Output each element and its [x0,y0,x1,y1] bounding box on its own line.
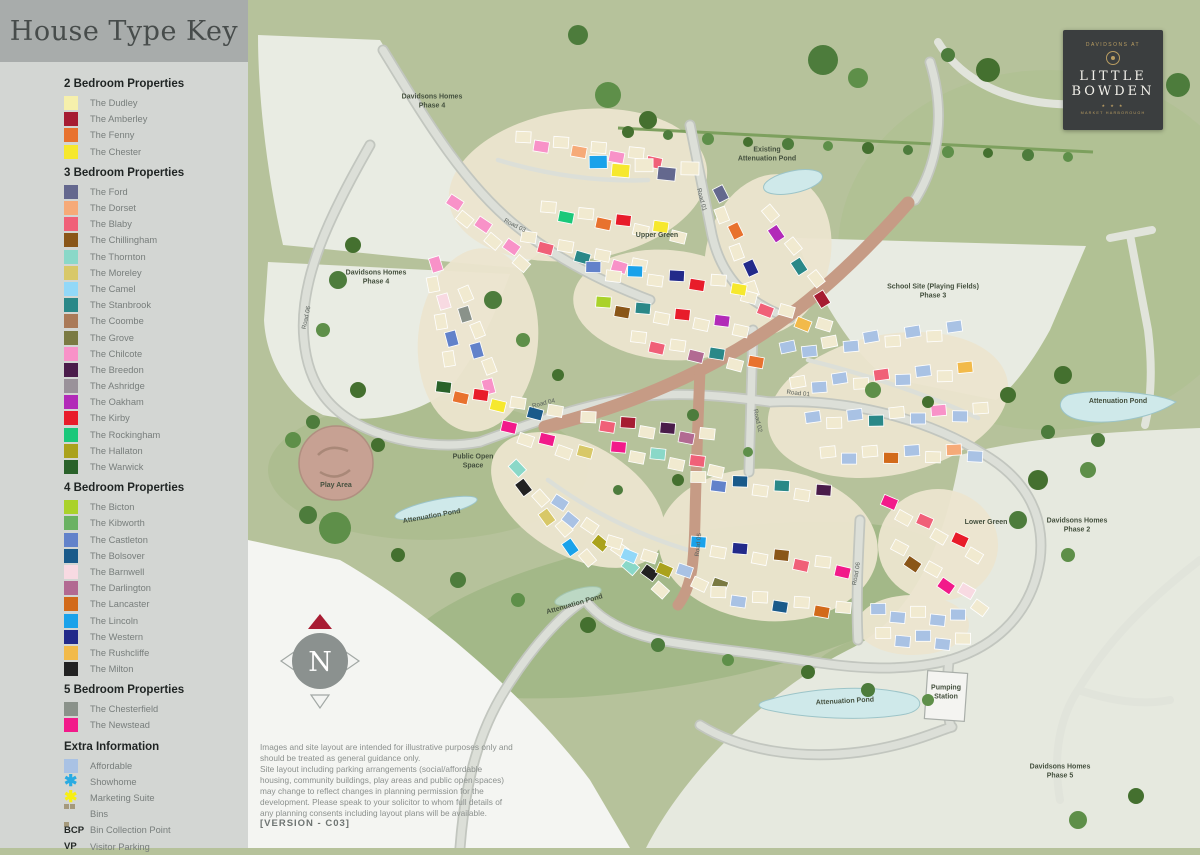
page-title: House Type Key [10,16,238,47]
panel-header: House Type Key [0,0,248,62]
house-plot [547,404,564,417]
legend-item: The Bicton [64,499,242,515]
house-plot [904,325,921,338]
house-plot [510,396,527,409]
site-plan-map: Davidsons HomesPhase 4ExistingAttenuatio… [248,0,1200,848]
legend-item: The Rushcliffe [64,645,242,661]
house-plot [442,350,455,367]
house-type-label: The Chester [90,147,141,157]
house-type-label: The Lancaster [90,599,149,609]
tree-icon [516,333,530,347]
house-type-label: The Castleton [90,535,148,545]
affordable-swatch [64,759,78,773]
legend-item: The Coombe [64,313,242,329]
house-type-label: The Camel [90,284,135,294]
house-type-swatch [64,233,78,247]
legend-icon-cell [64,662,79,677]
house-type-swatch [64,282,78,296]
legend-icon-cell [64,427,79,442]
legend-item: The Chester [64,144,242,160]
house-plot [571,145,588,158]
legend-icon-cell [64,613,79,628]
house-plot [752,484,768,497]
house-plot [434,313,447,330]
tree-icon [1091,433,1105,447]
house-plot [732,542,748,554]
logo-name-line2: BOWDEN [1071,84,1154,99]
legend-icon-cell: BCP [64,823,79,838]
tree-icon [1028,470,1048,490]
house-plot [557,240,574,253]
house-type-label: The Thornton [90,252,146,262]
house-type-label: The Ford [90,187,128,197]
legend-item: The Kibworth [64,515,242,531]
legend-icon-cell [64,548,79,563]
house-plot [955,633,970,644]
house-plot [794,488,811,501]
legend-icon-cell [64,411,79,426]
house-plot [627,266,642,278]
house-type-label: The Chesterfield [90,704,158,714]
house-plot [957,361,973,374]
house-type-swatch [64,347,78,361]
house-type-swatch [64,112,78,126]
version-label: [VERSION - C03] [260,818,350,829]
house-plot [843,340,859,352]
house-plot [653,312,670,326]
house-plot [605,270,621,283]
house-plot [801,345,817,358]
tree-icon [941,48,955,62]
house-plot [436,381,452,394]
house-plot [533,140,550,153]
tree-icon [861,683,875,697]
house-plot [732,476,747,488]
legend-icon-cell [64,629,79,644]
legend-icon-cell [64,346,79,361]
house-plot [952,411,967,422]
house-plot [820,446,836,459]
house-type-label: The Blaby [90,219,132,229]
house-plot [670,339,686,352]
legend-item: The Ford [64,184,242,200]
compass-letter: N [308,647,332,678]
house-plot [883,452,898,463]
house-plot [611,163,630,178]
tree-icon [976,58,1000,82]
legend-item: The Stanbrook [64,297,242,313]
tree-icon [345,237,361,253]
house-type-label: The Dudley [90,98,138,108]
tree-icon [942,146,954,158]
tree-icon [823,141,833,151]
legend-item: The Fenny [64,127,242,143]
house-plot [473,388,489,401]
house-plot [608,150,625,164]
house-type-swatch [64,314,78,328]
legend-icon-cell [64,645,79,660]
tree-icon [1009,511,1027,529]
house-type-swatch [64,646,78,660]
logo-name-line1: LITTLE [1079,69,1146,84]
house-type-swatch [64,702,78,716]
house-type-label: The Chilcote [90,349,142,359]
compass-south-arrow-icon [311,695,329,708]
legend-item: The Chillingham [64,232,242,248]
house-plot [631,331,647,344]
legend-item: The Barnwell [64,564,242,580]
tree-icon [808,45,838,75]
house-plot [895,374,910,386]
house-plot [925,451,940,463]
legend-icon-cell [64,265,79,280]
tree-icon [801,665,815,679]
disclaimer-paragraph-1: Images and site layout are intended for … [260,742,515,764]
map-label: Lower Green [965,519,1008,526]
tree-icon [743,137,753,147]
logo-location: MARKET HARBOROUGH [1081,111,1146,115]
house-plot [591,141,607,153]
house-plot [589,155,607,168]
house-type-label: The Warwick [90,462,143,472]
house-plot [950,609,965,620]
house-plot [930,614,946,627]
legend-item: The Hallaton [64,443,242,459]
house-plot [710,480,726,493]
disclaimer-paragraph-2: Site layout including parking arrangemen… [260,764,515,819]
little-bowden-logo: DAVIDSONS AT LITTLE BOWDEN ★ ★ ★ MARKET … [1063,30,1163,130]
tree-icon [743,447,753,457]
house-plot [915,365,931,378]
tree-icon [329,271,347,289]
house-type-swatch [64,630,78,644]
tree-icon [622,126,634,138]
house-type-swatch [64,533,78,547]
house-plot [876,627,891,638]
house-plot [669,270,685,282]
legend-icon-cell [64,112,79,127]
house-type-label: The Dorset [90,203,136,213]
legend-icon-cell [64,443,79,458]
house-plot [863,330,880,343]
tree-icon [316,323,330,337]
house-plot [553,136,569,148]
house-plot [789,375,806,388]
tree-icon [1080,462,1096,478]
tree-icon [983,148,993,158]
house-plot [842,453,857,464]
house-type-swatch [64,565,78,579]
house-plot [937,371,952,382]
tree-icon [862,142,874,154]
north-compass: N [272,608,368,714]
house-plot [751,552,768,566]
legend-icon-cell [64,281,79,296]
legend-icon-cell [64,758,79,773]
house-type-label: The Darlington [90,583,151,593]
house-type-label: The Chillingham [90,235,157,245]
showhome-icon: ✱ [64,775,77,789]
legend-item: The Ashridge [64,378,242,394]
legend-icon-cell [64,314,79,329]
legend-item: The Grove [64,329,242,345]
house-plot [660,422,676,434]
legend-item: ✱Marketing Suite [64,790,242,806]
house-type-label: The Bolsover [90,551,145,561]
legend-item: BCPBin Collection Point [64,822,242,838]
tree-icon [1061,548,1075,562]
house-plot [709,347,726,360]
house-type-label: The Western [90,632,143,642]
legend-item: The Lincoln [64,612,242,628]
house-plot [657,166,676,181]
house-plot [611,441,627,453]
legend-item: The Dudley [64,95,242,111]
legend-section-heading: 5 Bedroom Properties [64,683,242,697]
legend-item: The Dorset [64,200,242,216]
house-plot [772,600,789,613]
tree-icon [595,82,621,108]
house-type-label: The Kibworth [90,518,145,528]
tree-icon [299,506,317,524]
house-type-swatch [64,662,78,676]
house-plot [541,201,557,213]
house-plot [650,448,666,461]
house-plot [816,484,832,496]
legend-icon-cell [64,330,79,345]
house-plot [628,147,644,160]
house-type-swatch [64,128,78,142]
house-plot [689,278,706,291]
tree-icon [687,409,699,421]
legend-abbreviation: BCP [64,825,84,836]
tree-icon [552,369,564,381]
legend-item: The Kirby [64,410,242,426]
house-type-label: The Grove [90,333,134,343]
house-plot [773,549,789,562]
legend-icon-cell [64,362,79,377]
house-plot [586,261,601,272]
tree-icon [450,572,466,588]
legend-item: The Milton [64,661,242,677]
legend-section-heading: Extra Information [64,740,242,754]
house-type-swatch [64,379,78,393]
disclaimer-text: Images and site layout are intended for … [260,742,515,819]
legend-abbreviation: VP [64,841,77,852]
house-plot [614,305,631,318]
house-plot [869,415,884,426]
legend-item: Affordable [64,758,242,774]
house-plot [710,546,727,559]
logo-prefix: DAVIDSONS AT [1086,42,1140,48]
house-type-swatch [64,298,78,312]
house-plot [826,417,841,429]
house-plot [871,603,886,614]
site-plan-svg: Davidsons HomesPhase 4ExistingAttenuatio… [248,0,1200,848]
house-plot [689,455,705,468]
legend-item: VPVisitor Parking [64,839,242,855]
house-plot [916,630,931,641]
house-type-label: Affordable [90,761,132,771]
house-plot [615,214,631,227]
house-type-label: The Oakham [90,397,144,407]
legend-icon-cell [64,298,79,313]
house-type-label: Bin Collection Point [90,825,171,835]
legend-item: The Castleton [64,532,242,548]
legend-icon-cell [64,718,79,733]
house-plot [714,314,730,327]
house-plot [558,210,575,224]
map-label: Upper Green [636,232,678,239]
house-plot [931,404,947,416]
house-type-label: Visitor Parking [90,842,150,852]
house-type-swatch [64,96,78,110]
legend-icon-cell [64,460,79,475]
house-type-swatch [64,395,78,409]
house-type-label: The Breedon [90,365,144,375]
tree-icon [484,291,502,309]
house-plot [895,635,911,647]
house-type-swatch [64,145,78,159]
tree-icon [580,617,596,633]
house-plot [674,308,690,321]
house-plot [889,406,905,419]
legend-item: ✱Showhome [64,774,242,790]
house-type-swatch [64,549,78,563]
tree-icon [1000,387,1016,403]
house-type-label: The Milton [90,664,133,674]
legend-item: Bins [64,806,242,822]
logo-stars: ★ ★ ★ [1102,103,1125,108]
house-plot [946,320,962,333]
house-type-swatch [64,597,78,611]
house-plot [885,335,901,347]
house-plot [635,159,653,172]
legend-icon-cell [64,702,79,717]
legend-item: The Thornton [64,249,242,265]
house-type-swatch [64,411,78,425]
house-type-label: The Hallaton [90,446,143,456]
house-plot [911,413,926,424]
tree-icon [672,474,684,486]
house-plot [821,335,838,349]
house-plot [678,431,695,445]
house-plot [794,596,810,608]
tree-icon [371,438,385,452]
house-type-label: The Amberley [90,114,147,124]
house-type-swatch [64,500,78,514]
legend-item: The Chilcote [64,346,242,362]
house-plot [973,402,989,414]
house-plot [691,471,706,482]
legend-item: The Western [64,629,242,645]
legend-icon-cell [64,379,79,394]
legend-icon-cell [64,516,79,531]
legend-icon-cell [64,597,79,612]
house-type-key-panel: House Type Key 2 Bedroom PropertiesThe D… [0,0,248,848]
legend-icon-cell [64,581,79,596]
tree-icon [1166,73,1190,97]
legend-icon-cell [64,144,79,159]
tree-icon [319,512,351,544]
legend-item: The Warwick [64,459,242,475]
house-plot [629,451,646,465]
house-plot [635,302,651,314]
house-type-label: The Rockingham [90,430,160,440]
house-plot [748,355,765,368]
tree-icon [639,111,657,129]
house-type-swatch [64,516,78,530]
tree-icon [663,130,673,140]
tree-icon [1041,425,1055,439]
legend-icon-cell [64,500,79,515]
house-type-label: The Rushcliffe [90,648,149,658]
house-type-swatch [64,460,78,474]
tree-icon [848,68,868,88]
compass-north-arrow-icon [308,614,332,629]
house-type-swatch [64,250,78,264]
tree-icon [922,396,934,408]
house-plot [862,445,878,457]
legend-section-heading: 2 Bedroom Properties [64,77,242,91]
house-type-swatch [64,718,78,732]
tree-icon [1128,788,1144,804]
house-plot [904,445,920,457]
legend-icon-cell [64,233,79,248]
house-type-swatch [64,363,78,377]
house-plot [967,451,983,463]
house-type-label: The Kirby [90,413,130,423]
house-plot [730,595,746,608]
house-plot [813,605,830,618]
tree-icon [702,133,714,145]
house-plot [620,417,636,429]
house-type-swatch [64,201,78,215]
tree-icon [903,145,913,155]
legend-icon-cell [64,184,79,199]
house-plot [426,276,440,293]
house-plot [811,381,827,393]
house-type-label: The Moreley [90,268,142,278]
house-type-label: The Barnwell [90,567,144,577]
house-type-swatch [64,428,78,442]
legend-item: The Amberley [64,111,242,127]
house-plot [831,372,848,385]
house-plot [847,408,863,421]
legend-icon-cell [64,807,79,822]
house-type-swatch [64,581,78,595]
house-plot [835,601,851,613]
house-type-label: The Coombe [90,316,144,326]
legend-item: The Moreley [64,265,242,281]
house-plot [516,131,532,143]
house-type-label: Showhome [90,777,137,787]
house-type-label: Bins [90,809,108,819]
house-plot [711,586,726,598]
tree-icon [651,638,665,652]
tree-icon [1054,366,1072,384]
tree-icon [568,25,588,45]
tree-icon [922,694,934,706]
house-plot [599,420,616,433]
legend-item: The Darlington [64,580,242,596]
house-type-swatch [64,614,78,628]
house-plot [890,611,906,623]
legend-icon-cell [64,217,79,232]
legend-icon-cell: ✱ [64,774,79,789]
map-label: Attenuation Pond [1089,398,1147,405]
legend-item: The Bolsover [64,548,242,564]
